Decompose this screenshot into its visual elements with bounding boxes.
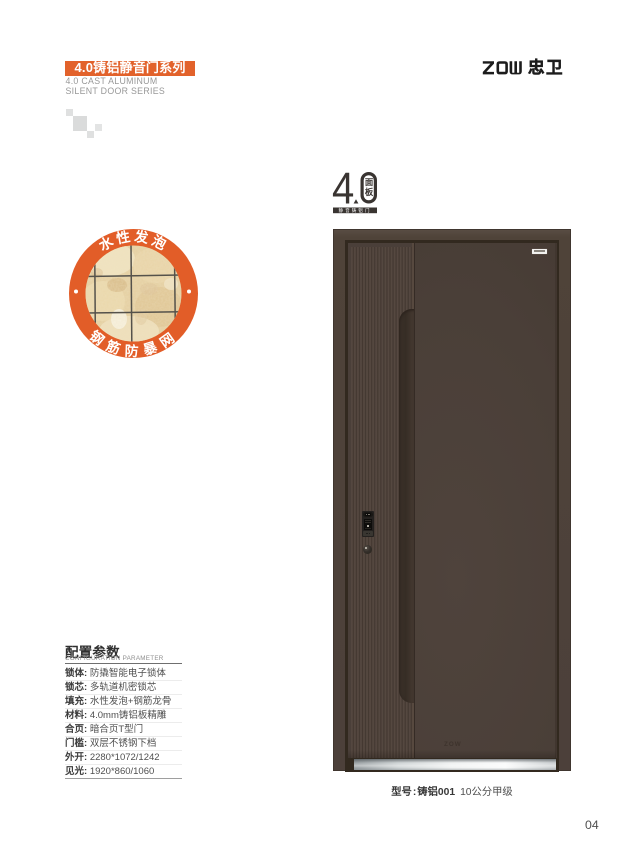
svg-text:发: 发	[132, 229, 149, 246]
svg-text:4: 4	[332, 168, 354, 213]
svg-text:性: 性	[114, 229, 131, 246]
svg-text:防: 防	[124, 342, 139, 357]
